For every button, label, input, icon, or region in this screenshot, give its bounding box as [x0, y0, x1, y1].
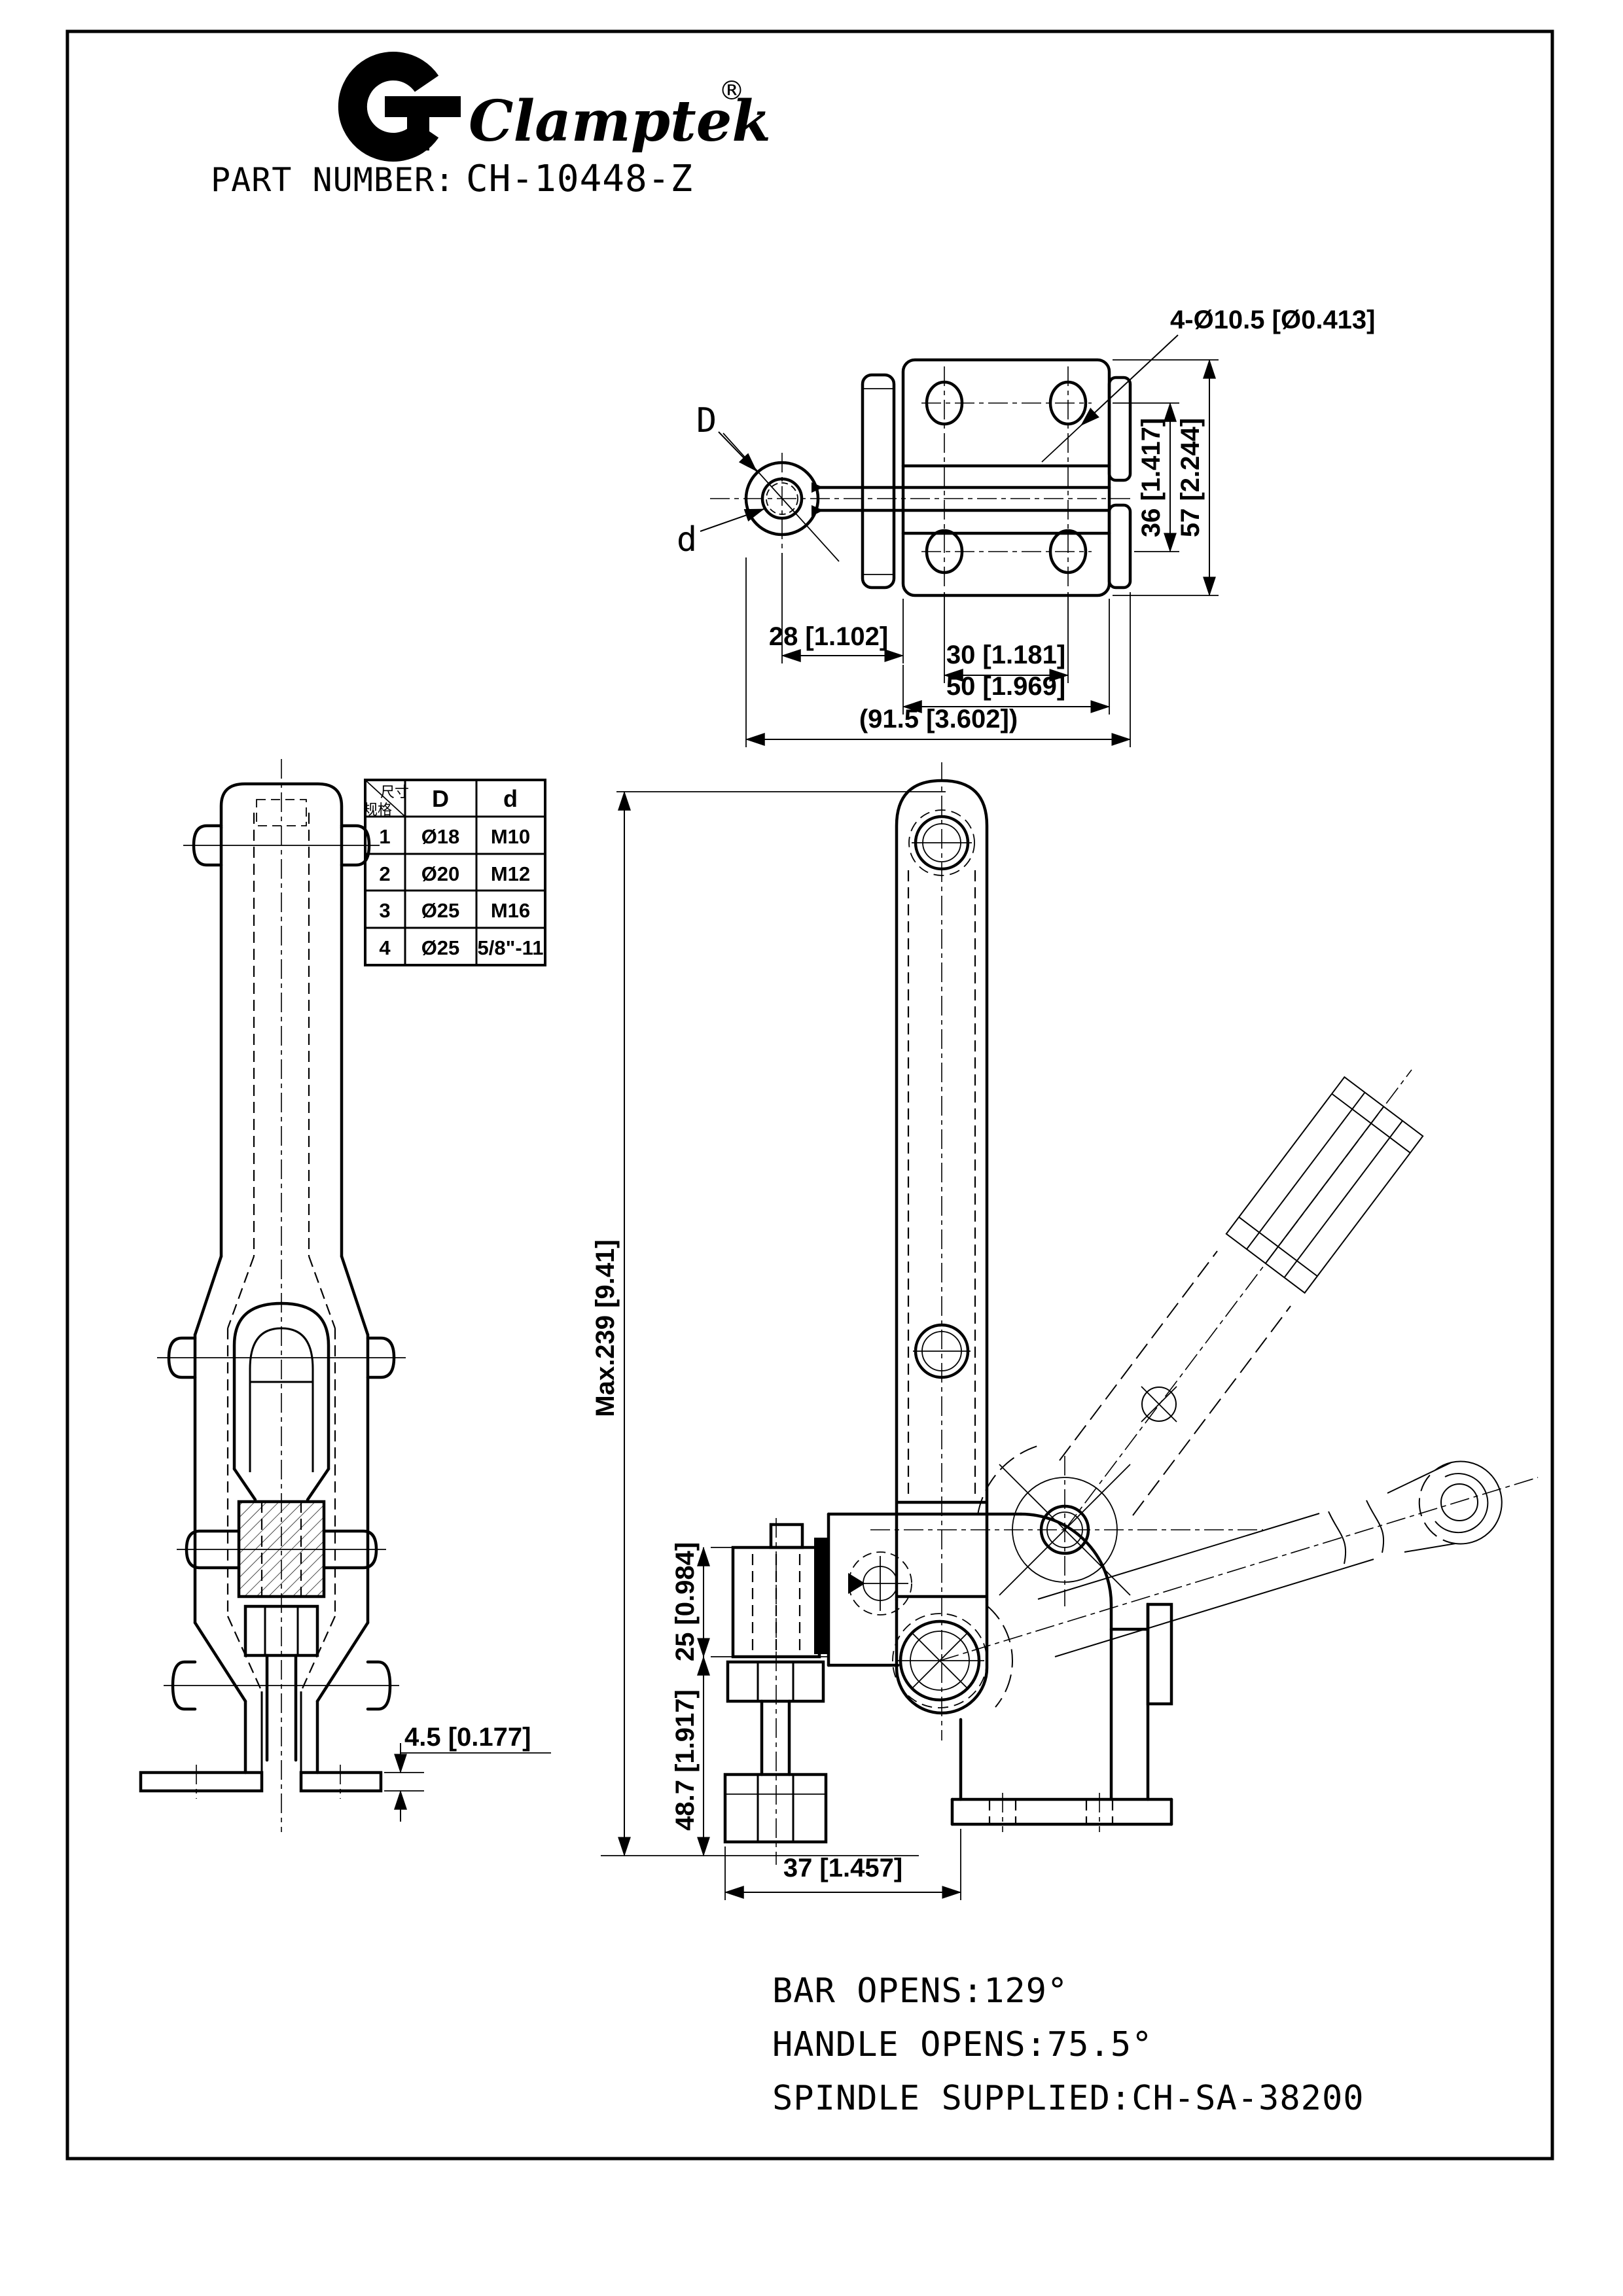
spindle-clamp-strip [814, 1538, 829, 1654]
spindle-nut [725, 1775, 826, 1842]
row-D: Ø18 [421, 825, 460, 848]
top-view: D d 4-Ø10.5 [Ø0.413] 36 [1.417] 57 [2.24… [677, 306, 1376, 747]
handle-open-phantom [978, 1070, 1423, 1530]
arm-pin-wedge [848, 1573, 865, 1594]
part-number-value: CH-10448-Z [466, 158, 693, 200]
table-row: 2 Ø20 M12 [379, 862, 530, 885]
dim-50: 50 [1.969] [946, 672, 1065, 701]
handle-bar-top [863, 375, 894, 588]
table-corner-bottom: 规格 [363, 802, 392, 818]
leader-D [719, 432, 757, 471]
dim-37: 37 [1.457] [783, 1854, 902, 1882]
row-no: 1 [379, 825, 390, 848]
dim-max-239: Max.239 [9.41] [591, 1239, 620, 1417]
row-d: 5/8"-11 [478, 936, 544, 959]
dim-36: 36 [1.417] [1137, 418, 1166, 537]
base-tab [1148, 1604, 1171, 1704]
drawing-sheet: Clamptek ® PART NUMBER: CH-10448-Z [0, 0, 1623, 2296]
u-bar-open-phantom [940, 1461, 1538, 1707]
row-no: 2 [379, 862, 390, 885]
dim-48-7: 48.7 [1.917] [671, 1689, 700, 1831]
note-bar-opens: BAR OPENS:129° [772, 1971, 1068, 2011]
label-D: D [696, 401, 717, 440]
row-D: Ø25 [421, 936, 460, 959]
flange-strip [1109, 505, 1130, 588]
part-number-label: PART NUMBER: [211, 161, 455, 199]
table-row: 3 Ø25 M16 [379, 899, 530, 922]
row-D: Ø20 [421, 862, 460, 885]
brand-logo: Clamptek ® [353, 66, 771, 154]
dim-25: 25 [0.984] [671, 1542, 700, 1661]
size-table: 尺寸 规格 D d 1 Ø18 M10 2 Ø20 M12 3 Ø25 M16 … [363, 780, 545, 965]
table-row: 1 Ø18 M10 [379, 825, 530, 848]
logo-g-mark [353, 66, 461, 150]
jam-nut [728, 1662, 823, 1701]
row-no: 3 [379, 899, 390, 922]
mounting-foot [301, 1773, 381, 1791]
dim-30: 30 [1.181] [946, 641, 1065, 669]
registered-mark-icon: ® [719, 76, 745, 106]
note-handle-opens: HANDLE OPENS:75.5° [772, 2025, 1153, 2064]
dim-28: 28 [1.102] [769, 622, 888, 651]
side-view: 4.5 [0.177] [141, 759, 551, 1832]
row-no: 4 [379, 936, 391, 959]
table-col-D: D [432, 785, 449, 812]
label-d: d [677, 520, 698, 559]
notes: BAR OPENS:129° HANDLE OPENS:75.5° SPINDL… [772, 1971, 1364, 2118]
row-d: M16 [491, 899, 530, 922]
flange-strip [1109, 378, 1130, 480]
row-D: Ø25 [421, 899, 460, 922]
plate-outline [903, 360, 1109, 595]
front-view: Max.239 [9.41] 25 [0.984] 48.7 [1.917] 3… [591, 762, 1538, 1900]
table-col-d: d [503, 785, 518, 812]
row-d: M10 [491, 825, 530, 848]
spindle-assembly [725, 1518, 826, 1865]
pivot-lobe [1021, 1514, 1111, 1799]
dim-4-5: 4.5 [0.177] [404, 1723, 531, 1752]
note-spindle-supplied: SPINDLE SUPPLIED:CH-SA-38200 [772, 2079, 1364, 2118]
row-d: M12 [491, 862, 530, 885]
table-row: 4 Ø25 5/8"-11 [379, 936, 543, 959]
drawing-canvas: Clamptek ® PART NUMBER: CH-10448-Z [0, 0, 1623, 2296]
dim-holes: 4-Ø10.5 [Ø0.413] [1170, 306, 1376, 334]
dim-91-5: (91.5 [3.602]) [859, 705, 1018, 733]
part-number-line: PART NUMBER: CH-10448-Z [211, 158, 693, 200]
page-border [67, 31, 1552, 2159]
handle-grip-phantom [1226, 1077, 1423, 1293]
table-corner-top: 尺寸 [380, 784, 409, 800]
mounting-foot [141, 1773, 262, 1791]
dim-57: 57 [2.244] [1176, 418, 1205, 537]
